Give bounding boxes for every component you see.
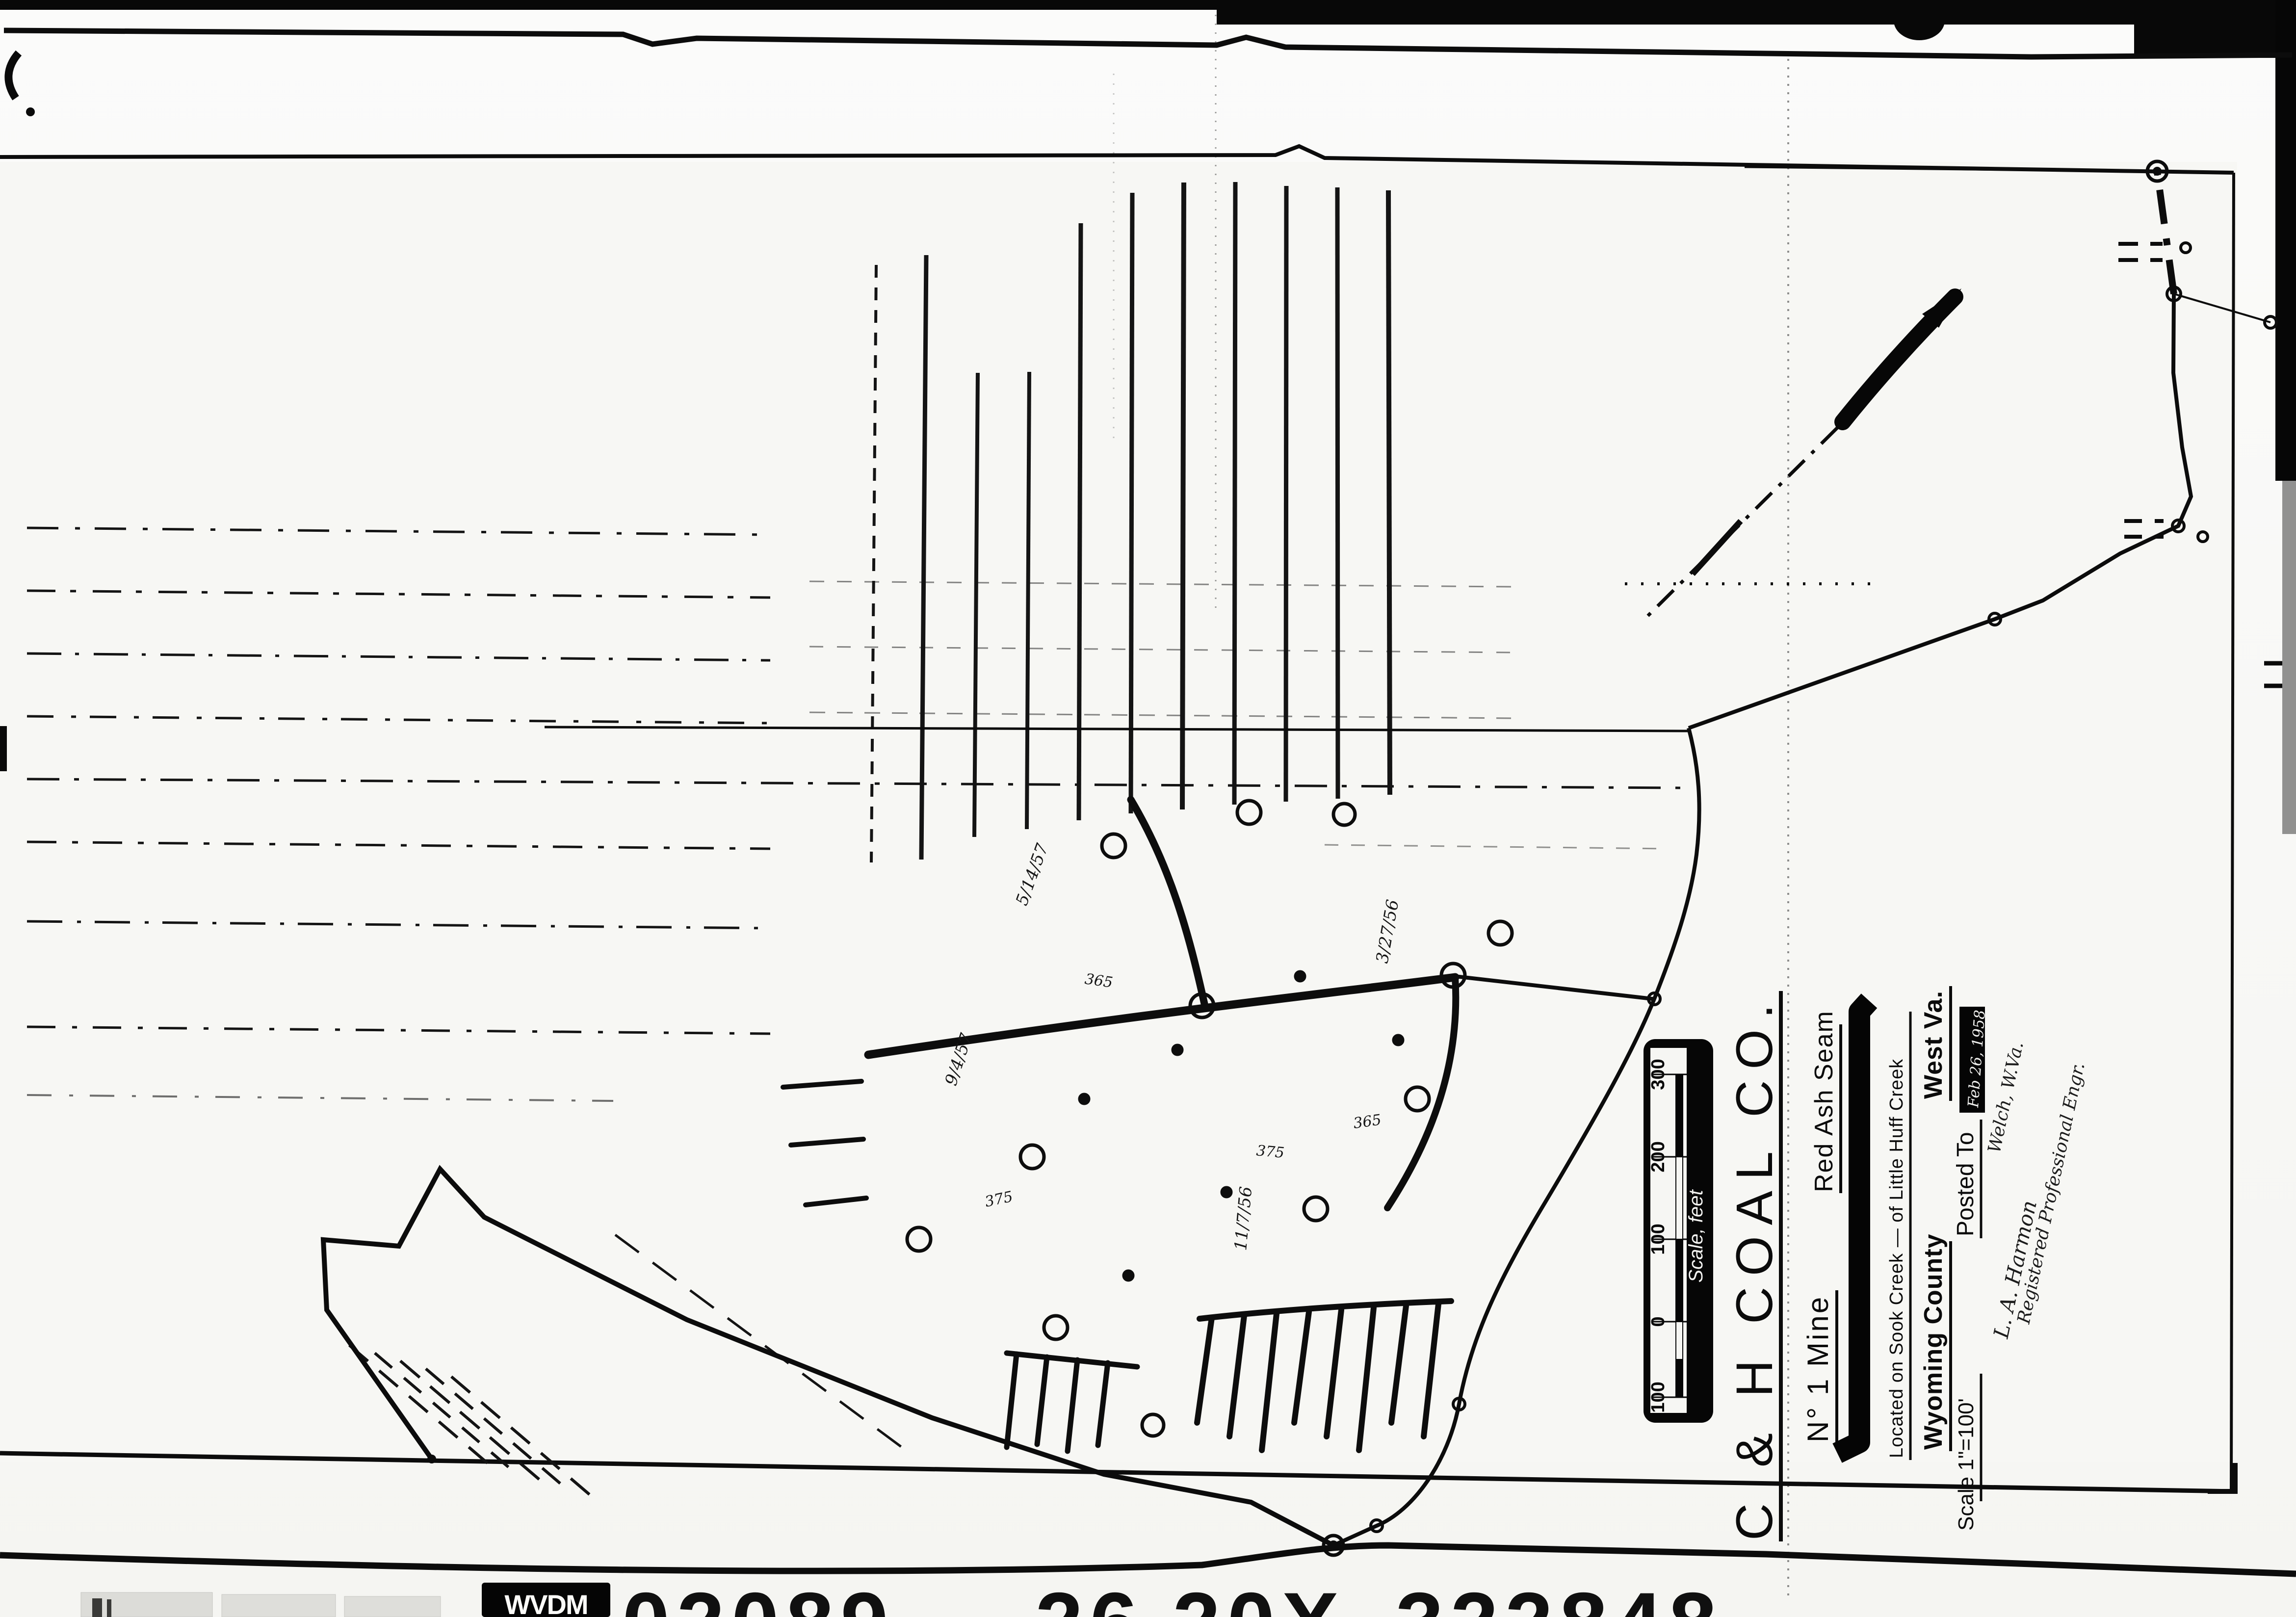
- left-edge-mark: [8, 53, 19, 98]
- elevation-label: 375: [1255, 1142, 1285, 1162]
- company-name: C & H COAL CO.: [1726, 993, 1783, 1540]
- scale-tick-200: 200: [1648, 1141, 1669, 1172]
- scale-note: Scale 1"=100': [1954, 1398, 1978, 1531]
- location-line: Located on Sook Creek — of Little Huff C…: [1886, 1059, 1907, 1458]
- posted-label: Posted To: [1953, 1132, 1979, 1236]
- archive-stamp: WVDM 02089 26 20X 322848: [81, 1575, 1723, 1617]
- county-name: Wyoming County: [1919, 1233, 1948, 1450]
- border-bottom-outer: [0, 1545, 2296, 1574]
- scale-bar-caption: Scale, feet: [1685, 1189, 1707, 1283]
- stamp-code: 20X: [1173, 1575, 1346, 1617]
- scale-bar: 300 200 100 0 100 Scale, feet: [1644, 1039, 1713, 1423]
- scanned-mine-map-sheet: 3/27/56 5/14/57 9/4/57 11/7/56 365 375 3…: [0, 0, 2296, 1617]
- mine-map-canvas: 3/27/56 5/14/57 9/4/57 11/7/56 365 375 3…: [0, 0, 2296, 1617]
- stamp-sheet-number: 26: [1035, 1575, 1145, 1617]
- seam-name: Red Ash Seam: [1810, 1010, 1838, 1192]
- stamp-doc-number: 02089: [622, 1575, 895, 1617]
- mine-name: N° 1 Mine: [1801, 1295, 1834, 1442]
- agency-label: WVDM: [504, 1589, 587, 1617]
- border-top-outer: [4, 30, 2292, 57]
- state-name: West Va.: [1919, 991, 1948, 1099]
- stamp-file-number: 322848: [1396, 1575, 1723, 1617]
- scale-bar-graduations: [1676, 1074, 1683, 1397]
- scale-tick-100b: 100: [1648, 1382, 1669, 1412]
- scale-tick-0: 0: [1648, 1316, 1669, 1327]
- scale-tick-100: 100: [1648, 1224, 1669, 1254]
- scale-tick-300: 300: [1648, 1059, 1669, 1090]
